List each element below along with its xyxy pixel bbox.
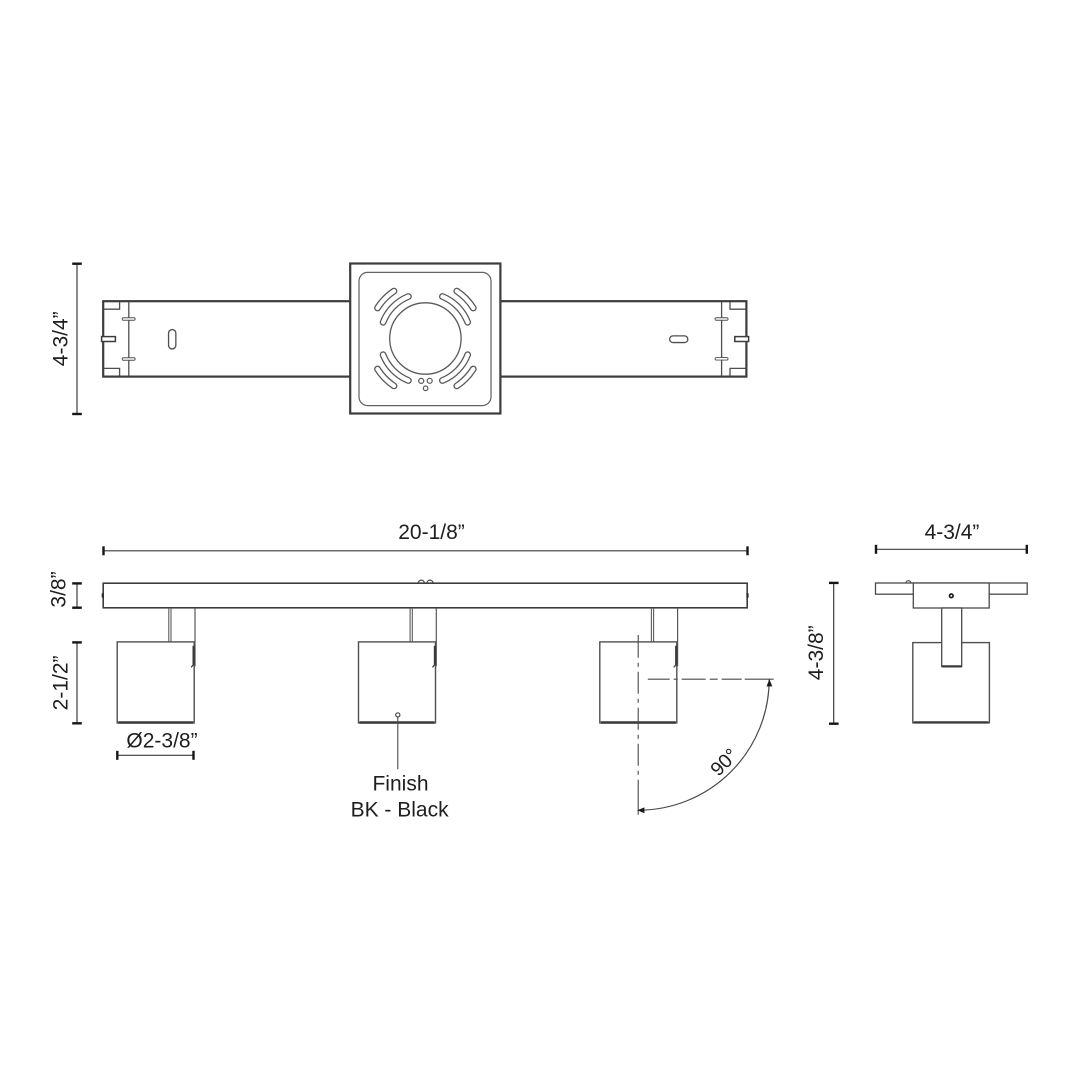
svg-text:BK - Black: BK - Black [351,799,450,822]
svg-text:Finish: Finish [372,773,428,796]
svg-text:4-3/8”: 4-3/8” [805,625,828,680]
svg-text:2-1/2”: 2-1/2” [49,655,72,710]
svg-text:3/8”: 3/8” [48,571,71,607]
svg-text:20-1/8”: 20-1/8” [398,521,465,544]
svg-text:Ø2-3/8”: Ø2-3/8” [126,730,197,753]
svg-text:4-3/4”: 4-3/4” [925,521,980,544]
svg-text:90°: 90° [706,744,742,780]
svg-text:4-3/4”: 4-3/4” [50,311,73,366]
